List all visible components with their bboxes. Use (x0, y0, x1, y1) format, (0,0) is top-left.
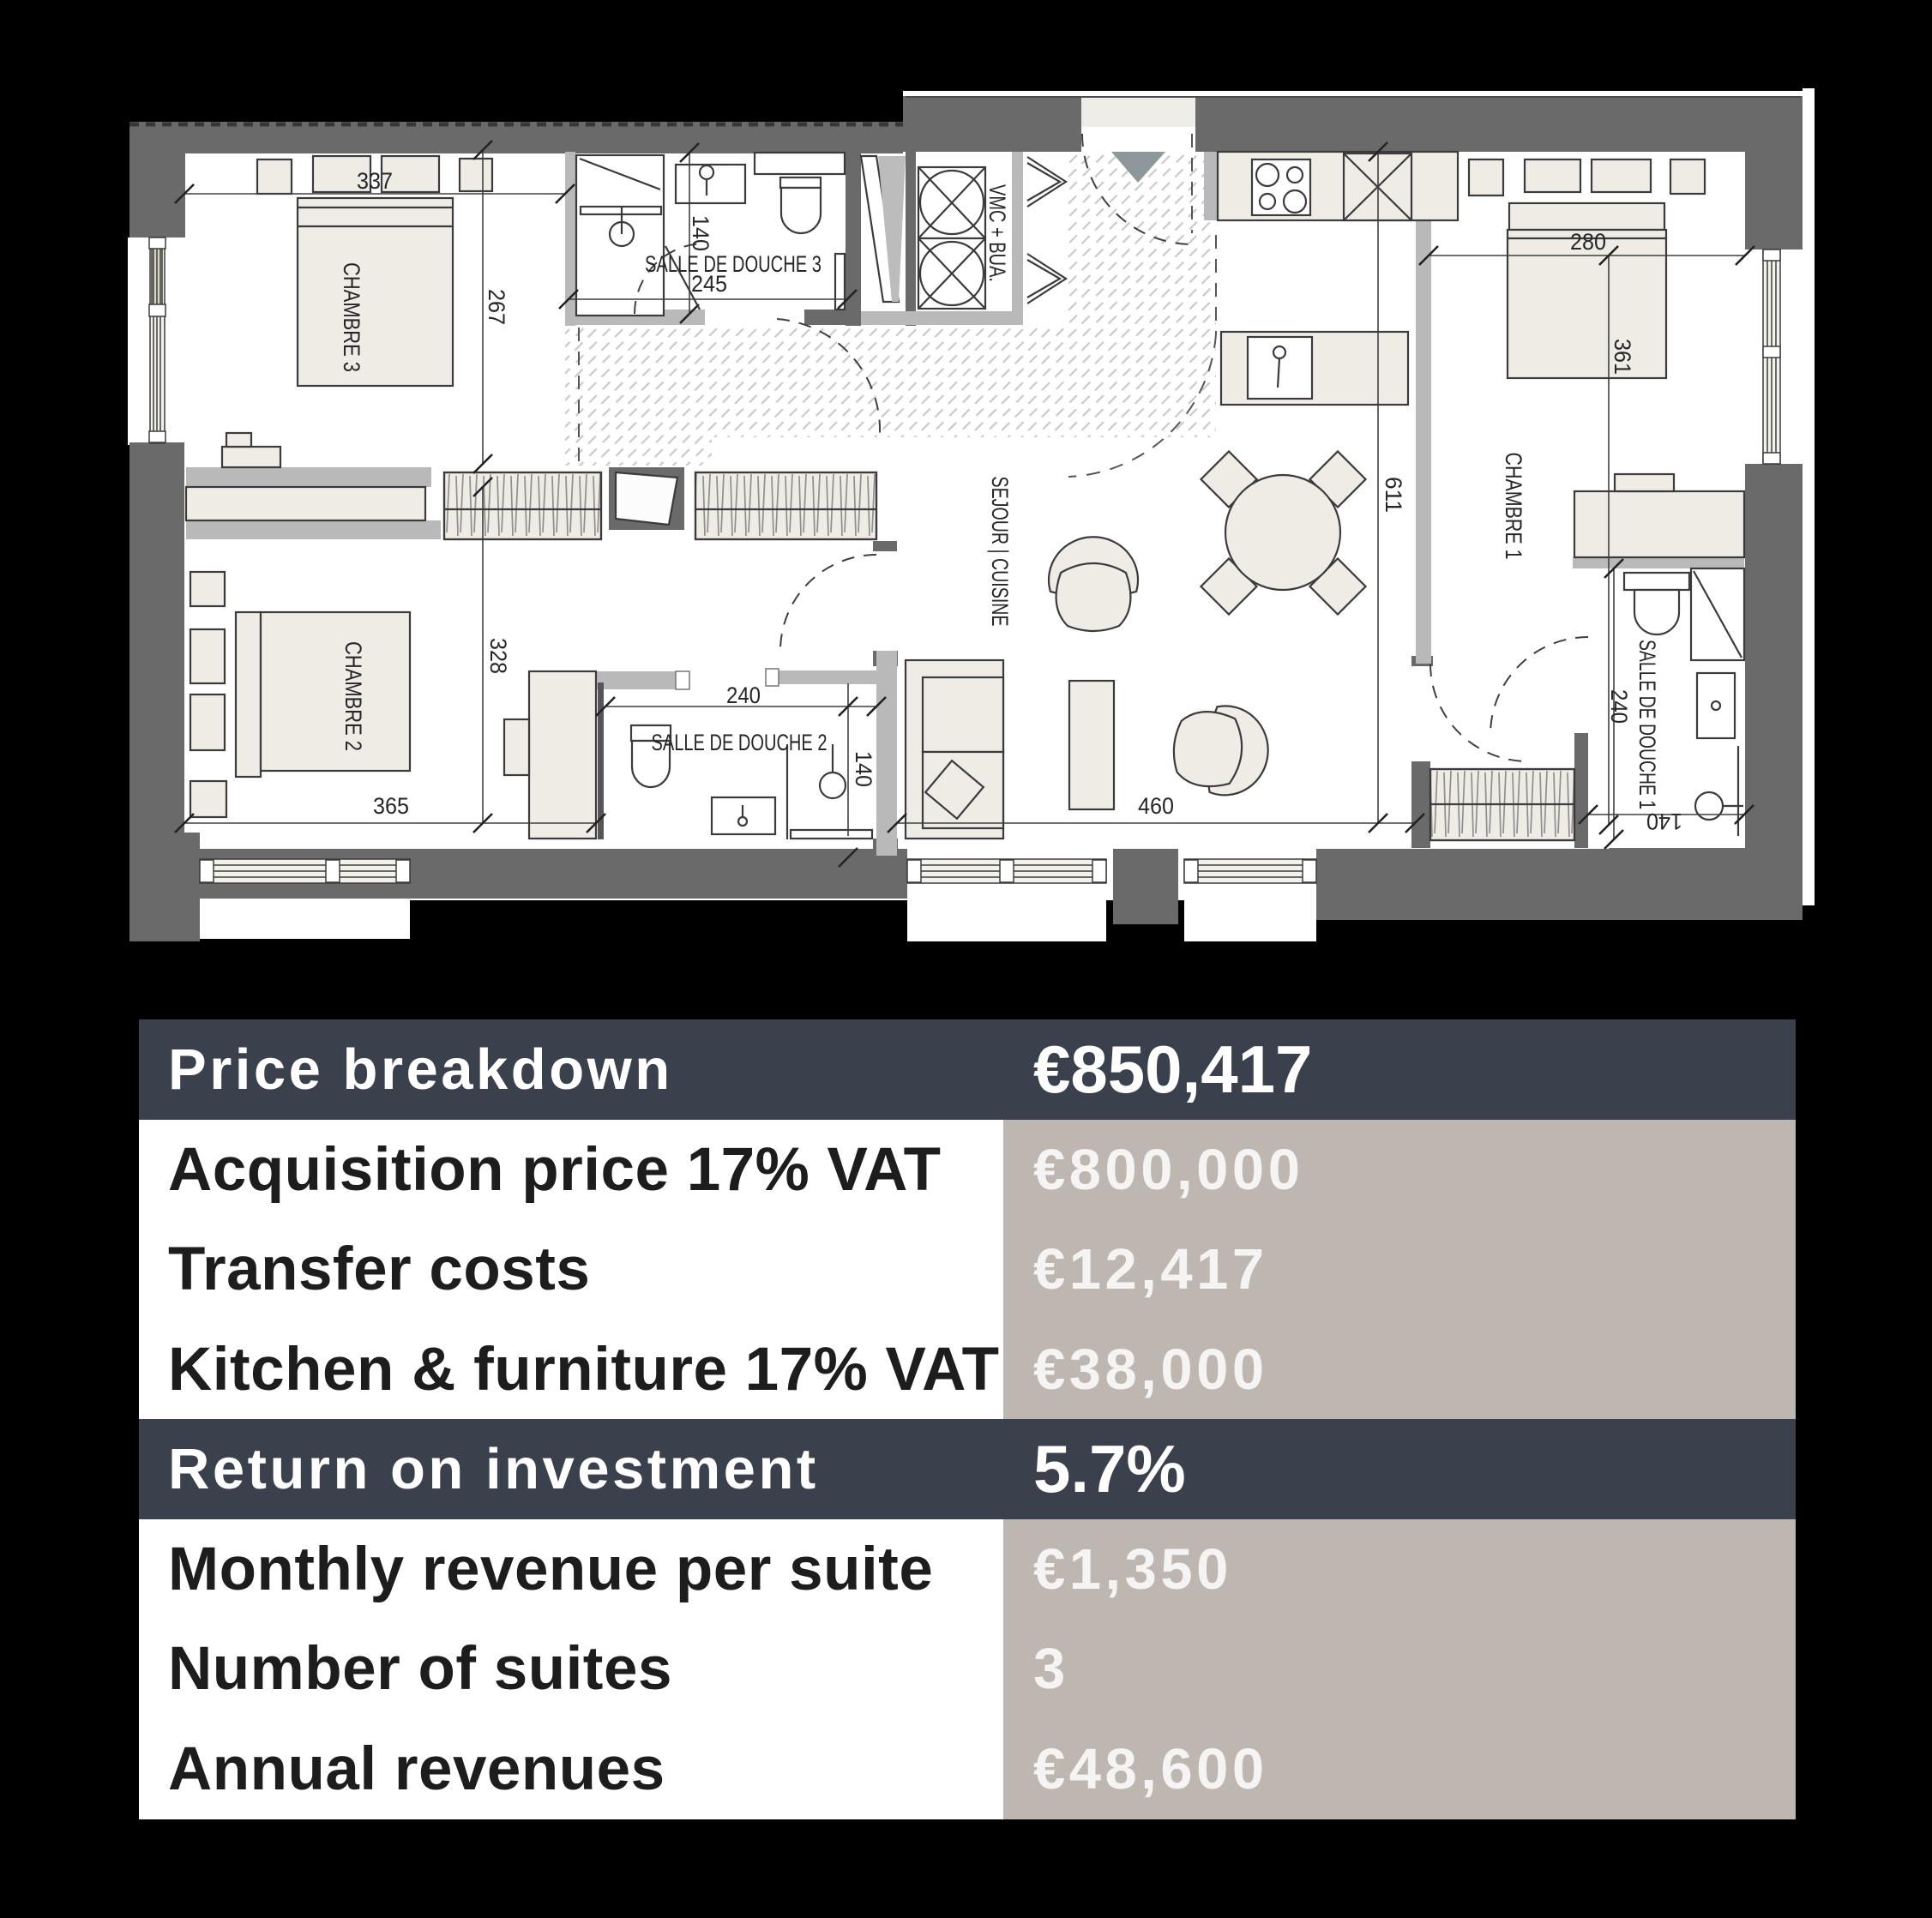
svg-text:267: 267 (484, 289, 509, 325)
svg-text:280: 280 (1570, 229, 1606, 255)
svg-text:140: 140 (1646, 809, 1682, 834)
svg-text:SEJOUR | CUISINE: SEJOUR | CUISINE (987, 477, 1013, 627)
svg-text:460: 460 (1138, 793, 1174, 819)
svg-text:140: 140 (688, 215, 713, 251)
svg-text:361: 361 (1610, 339, 1635, 375)
svg-text:337: 337 (357, 168, 393, 194)
svg-text:328: 328 (485, 638, 511, 674)
svg-text:365: 365 (373, 793, 409, 819)
svg-text:611: 611 (1381, 477, 1406, 513)
svg-text:240: 240 (726, 682, 761, 708)
svg-text:VMC + BUA.: VMC + BUA. (984, 184, 1010, 282)
svg-text:SALLE DE DOUCHE 2: SALLE DE DOUCHE 2 (652, 730, 828, 755)
svg-text:CHAMBRE 3: CHAMBRE 3 (339, 262, 364, 372)
svg-text:140: 140 (851, 751, 876, 787)
svg-text:CHAMBRE 1: CHAMBRE 1 (1501, 453, 1526, 560)
svg-text:CHAMBRE 2: CHAMBRE 2 (340, 641, 366, 751)
svg-text:SALLE DE DOUCHE 1: SALLE DE DOUCHE 1 (1634, 640, 1660, 809)
svg-text:SALLE DE DOUCHE 3: SALLE DE DOUCHE 3 (645, 251, 822, 277)
svg-text:240: 240 (1606, 689, 1632, 724)
